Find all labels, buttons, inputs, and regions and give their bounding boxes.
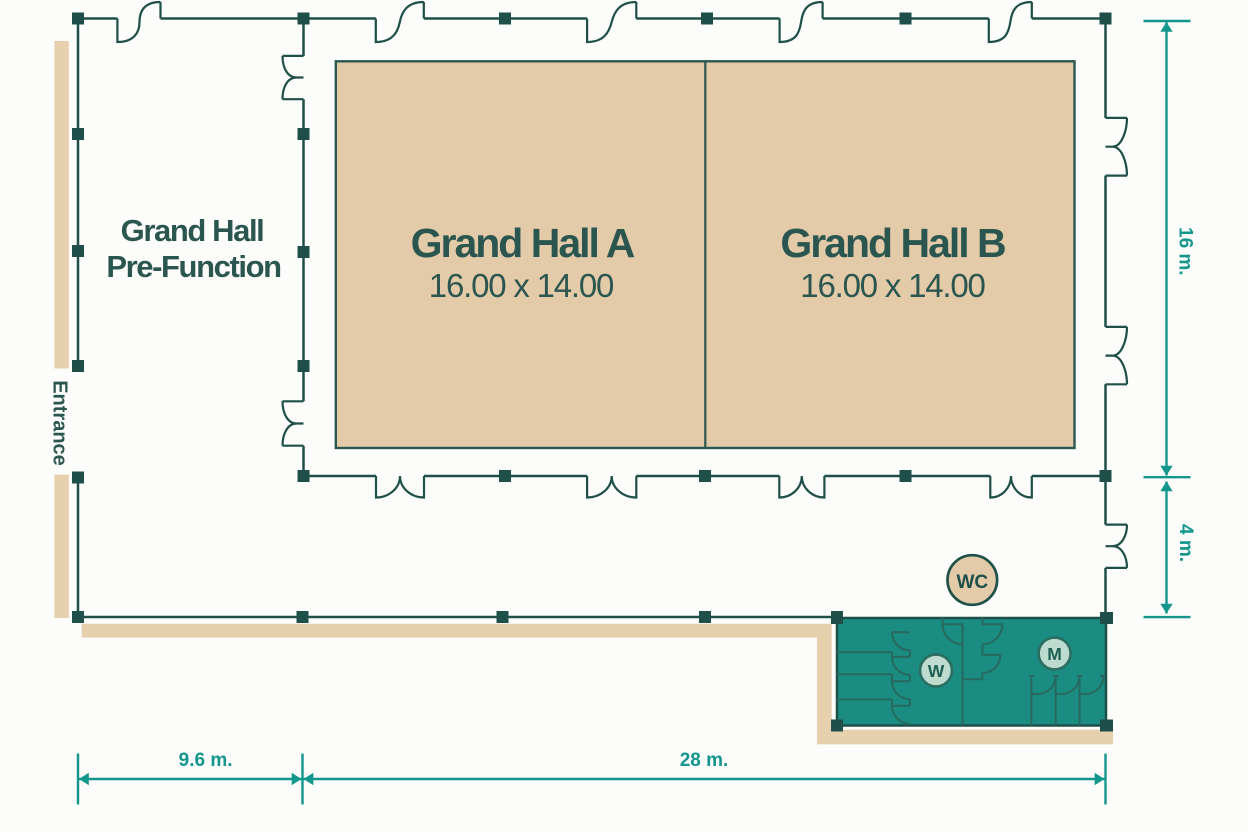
svg-text:Grand Hall B: Grand Hall B <box>780 220 1005 266</box>
svg-text:W: W <box>928 661 945 681</box>
svg-text:Grand Hall: Grand Hall <box>121 213 264 248</box>
svg-text:M: M <box>1047 644 1062 664</box>
svg-text:16 m.: 16 m. <box>1175 227 1196 276</box>
svg-text:Entrance: Entrance <box>49 380 71 466</box>
svg-text:16.00 x 14.00: 16.00 x 14.00 <box>429 267 614 304</box>
svg-text:28 m.: 28 m. <box>680 750 729 771</box>
svg-text:WC: WC <box>956 572 988 593</box>
svg-text:Pre-Function: Pre-Function <box>106 249 281 284</box>
svg-text:4 m.: 4 m. <box>1175 524 1196 562</box>
svg-text:Grand Hall A: Grand Hall A <box>411 220 635 266</box>
svg-text:16.00 x 14.00: 16.00 x 14.00 <box>800 267 985 304</box>
svg-text:9.6 m.: 9.6 m. <box>179 750 233 771</box>
